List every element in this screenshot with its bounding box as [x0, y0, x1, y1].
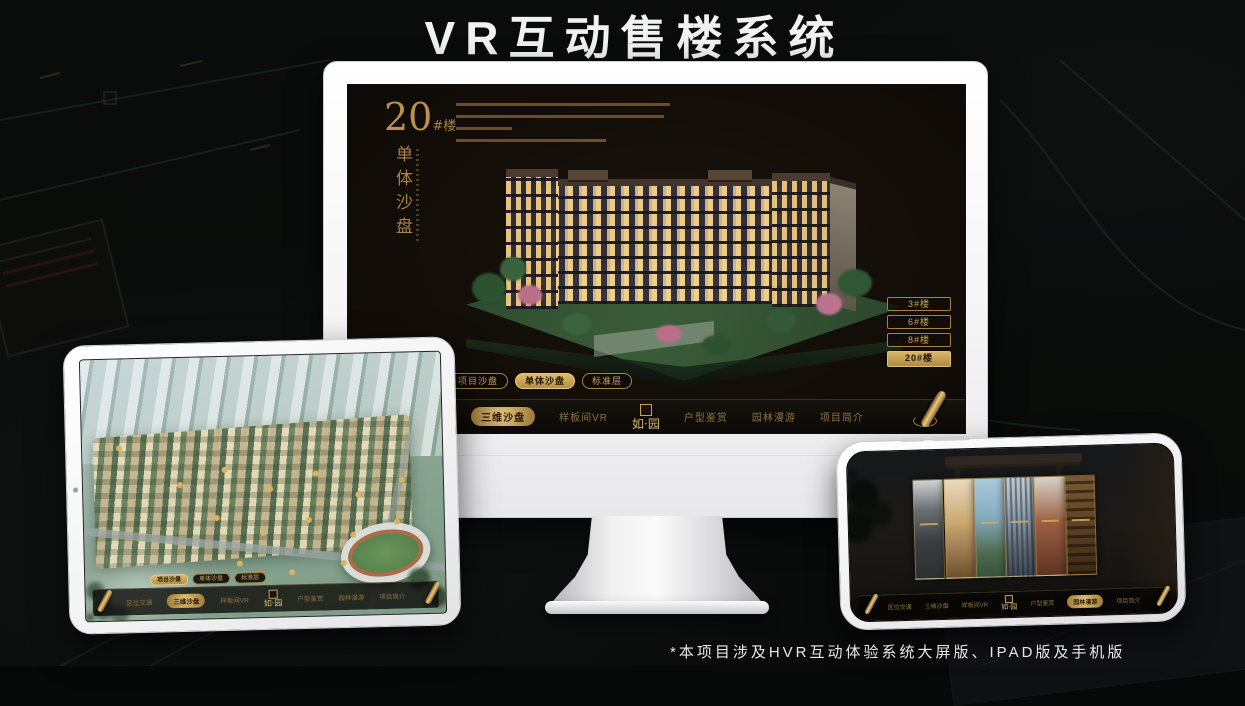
tablet-nav-item-floorplan[interactable]: 户型鉴赏 [297, 593, 323, 604]
tablet-tab-project-sandbox-active[interactable]: 项目沙盘 [150, 574, 188, 586]
phone-nav-item-model-room-vr[interactable]: 样板间VR [962, 599, 989, 609]
subtitle-english-microtext [416, 149, 419, 241]
blossom-tree [816, 293, 842, 315]
building-right-wing [772, 173, 830, 307]
courtyard-gate-roof [945, 453, 1082, 466]
phone-screen: 区位交通 三维沙盘 样板间VR 如·园 户型鉴赏 园林漫游 项目简介 [846, 442, 1179, 622]
tree [472, 273, 506, 303]
tab-unit-sandbox-active[interactable]: 单体沙盘 [515, 373, 575, 389]
logo-text: 如·园 [632, 418, 660, 430]
tablet-nav-item-garden-roam[interactable]: 园林漫游 [338, 592, 364, 603]
tablet-device: 项目沙盘 单体沙盘 标准层 区位交通 三维沙盘 样板间VR 如·园 户型鉴赏 园… [63, 336, 462, 634]
tree-silhouette [847, 469, 857, 479]
scene-card-label [950, 522, 968, 525]
tree [562, 313, 592, 335]
tree [702, 335, 732, 355]
building-number-suffix: #楼 [432, 119, 456, 134]
roof-tower [708, 170, 752, 180]
intro-text-lines [456, 103, 672, 151]
tree [500, 257, 526, 281]
scene-card-garden[interactable] [973, 477, 1006, 578]
phone-device: 区位交通 三维沙盘 样板间VR 如·园 户型鉴赏 园林漫游 项目简介 [835, 432, 1186, 631]
scene-card-label [1071, 519, 1089, 522]
logo-text: 如·园 [264, 600, 283, 608]
logo-seal-icon [1005, 595, 1013, 603]
tablet-nav-item-model-room-vr[interactable]: 样板间VR [220, 594, 249, 605]
phone-nav-item-floorplan[interactable]: 户型鉴赏 [1030, 597, 1054, 607]
tablet-brand-logo: 如·园 [264, 590, 283, 608]
logo-text: 如·园 [1001, 604, 1017, 611]
building-center-block [540, 179, 790, 304]
sandbox-tab-group: 项目沙盘 单体沙盘 标准层 [448, 373, 632, 389]
tablet-camera-dot [73, 487, 78, 492]
phone-nav-item-garden-roam-active[interactable]: 园林漫游 [1067, 594, 1103, 608]
tab-standard-floor[interactable]: 标准层 [582, 373, 632, 389]
floor-button-6[interactable]: 6#楼 [887, 315, 951, 329]
logo-seal-icon [268, 590, 277, 599]
footnote-text: *本项目涉及HVR互动体验系统大屏版、IPAD版及手机版 [670, 641, 1125, 662]
tablet-tab-unit-sandbox[interactable]: 单体沙盘 [192, 573, 230, 585]
logo-seal-icon [640, 404, 652, 416]
roof-tower [568, 170, 608, 180]
scroll-menu-icon[interactable] [1151, 585, 1168, 607]
tablet-sandbox-tab-group: 项目沙盘 单体沙盘 标准层 [150, 572, 266, 586]
floor-button-group: 3#楼 6#楼 8#楼 20#楼 [887, 297, 951, 371]
scene-card-study[interactable] [1064, 474, 1097, 575]
sandbox-subtitle: 单体沙盘 [390, 145, 415, 241]
blossom-tree [656, 325, 682, 343]
page-title: VR互动售楼系统 [0, 2, 1245, 68]
nav-item-project-intro[interactable]: 项目简介 [820, 409, 864, 424]
phone-nav-item-location[interactable]: 区位交通 [888, 601, 912, 611]
brand-logo: 如·园 [632, 404, 660, 430]
phone-nav-item-project-intro[interactable]: 项目简介 [1116, 595, 1140, 605]
scene-card-interior[interactable] [943, 478, 976, 579]
nav-item-floorplan[interactable]: 户型鉴赏 [684, 409, 728, 424]
building-number: 20 [384, 95, 432, 139]
phone-side-button [932, 436, 970, 441]
building-3d-model[interactable] [466, 153, 902, 399]
scroll-menu-icon[interactable] [859, 593, 876, 615]
monitor-stand-base [545, 601, 769, 614]
scene-card-label [920, 523, 938, 526]
scene-card-autumn[interactable] [1034, 475, 1067, 576]
phone-nav-item-3d-sandbox[interactable]: 三维沙盘 [925, 600, 949, 610]
warm-wall [1120, 443, 1176, 593]
nav-item-3d-sandbox-active[interactable]: 三维沙盘 [471, 407, 535, 426]
scene-card-label [1041, 519, 1059, 522]
scene-card-label [1011, 520, 1029, 523]
scroll-menu-icon[interactable] [91, 589, 110, 613]
scene-card-courtyard[interactable] [913, 479, 946, 580]
tree [766, 309, 796, 333]
tablet-screen: 项目沙盘 单体沙盘 标准层 区位交通 三维沙盘 样板间VR 如·园 户型鉴赏 园… [79, 351, 447, 623]
tree [838, 269, 872, 297]
scene-card-building[interactable] [1004, 476, 1037, 577]
building-number-title: 20#楼 [384, 95, 456, 139]
floor-button-3[interactable]: 3#楼 [887, 297, 951, 311]
phone-brand-logo: 如·园 [1001, 595, 1018, 611]
scroll-menu-icon[interactable] [919, 389, 949, 429]
floor-button-8[interactable]: 8#楼 [887, 333, 951, 347]
tab-project-sandbox[interactable]: 项目沙盘 [448, 373, 508, 389]
tablet-nav-item-3d-sandbox-active[interactable]: 三维沙盘 [167, 593, 205, 608]
floor-button-20-active[interactable]: 20#楼 [887, 351, 951, 367]
scroll-menu-icon[interactable] [419, 581, 438, 605]
nav-item-model-room-vr[interactable]: 样板间VR [559, 409, 608, 424]
phone-side-button [900, 437, 924, 442]
tablet-tab-standard-floor[interactable]: 标准层 [234, 572, 266, 584]
tablet-nav-item-location[interactable]: 区位交通 [126, 597, 152, 608]
scene-card-label [981, 521, 999, 524]
nav-item-garden-roam[interactable]: 园林漫游 [752, 409, 796, 424]
blossom-tree [518, 285, 542, 305]
tablet-nav-item-project-intro[interactable]: 项目简介 [379, 591, 405, 602]
